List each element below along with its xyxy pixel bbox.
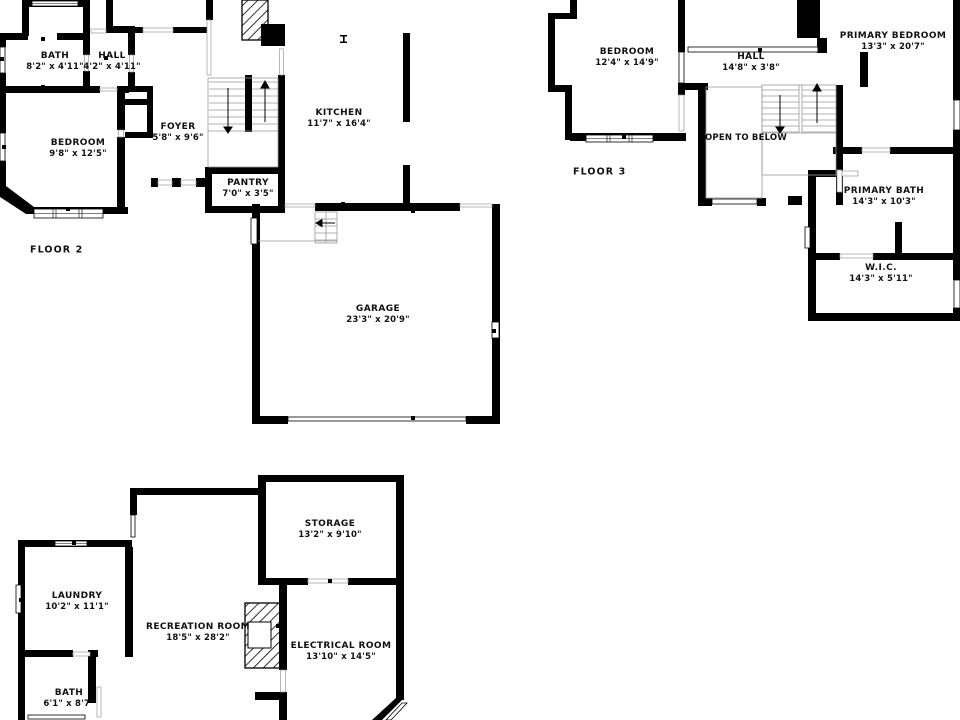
dimension-ticks [0,37,958,655]
room-label-f2-kitchen: KITCHEN 11'7" x 16'4" [307,108,371,130]
room-name: BEDROOM [595,47,659,58]
room-label-f3-primary-bath: PRIMARY BATH 14'3" x 10'3" [844,186,924,208]
room-name: LAUNDRY [45,591,109,602]
floorplan-image: BATH 8'2" x 4'11" HALL 4'2" x 4'11" BEDR… [0,0,960,720]
room-name: BEDROOM [49,138,106,149]
room-name: W.I.C. [849,263,913,274]
floor3-label: FLOOR 3 [573,167,626,178]
room-label-f2-foyer: FOYER 5'8" x 9'6" [152,122,203,144]
room-dims: 13'2" x 9'10" [298,530,362,541]
room-dims: 11'7" x 16'4" [307,119,371,130]
room-label-f3-hall: HALL 14'8" x 3'8" [722,52,779,74]
room-label-f1-electrical-room: ELECTRICAL ROOM 13'10" x 14'5" [291,641,392,663]
room-label-f1-storage: STORAGE 13'2" x 9'10" [298,519,362,541]
room-name: GARAGE [346,304,410,315]
room-label-f2-garage: GARAGE 23'3" x 20'9" [346,304,410,326]
room-dims: 14'3" x 5'11" [849,274,913,285]
room-dims: 12'4" x 14'9" [595,58,659,69]
room-dims: 5'8" x 9'6" [152,133,203,144]
room-dims: 14'3" x 10'3" [844,197,924,208]
floor1-chimney [245,603,280,668]
room-name: ELECTRICAL ROOM [291,641,392,652]
floor2-stairs [208,78,337,243]
room-dims: 23'3" x 20'9" [346,315,410,326]
room-dims: 13'10" x 14'5" [291,652,392,663]
room-label-f2-hall: HALL 4'2" x 4'11" [83,51,140,73]
room-label-f1-laundry: LAUNDRY 10'2" x 11'1" [45,591,109,613]
floor2-label: FLOOR 2 [30,245,83,256]
room-name: FOYER [152,122,203,133]
room-label-f3-wic: W.I.C. 14'3" x 5'11" [849,263,913,285]
room-label-f2-bath: BATH 8'2" x 4'11" [26,51,83,73]
room-label-f3-primary-bedroom: PRIMARY BEDROOM 13'3" x 20'7" [840,31,947,53]
room-name: KITCHEN [307,108,371,119]
room-name: PRIMARY BATH [844,186,924,197]
room-name: HALL [83,51,140,62]
open-to-below-label: OPEN TO BELOW [705,133,787,143]
room-name: BATH [43,688,94,699]
room-label-f2-bedroom: BEDROOM 9'8" x 12'5" [49,138,106,160]
floor3-door-openings [679,95,890,258]
room-name: RECREATION ROOM [146,622,250,633]
room-dims: 8'2" x 4'11" [26,62,83,73]
room-label-f1-recreation-room: RECREATION ROOM 18'5" x 28'2" [146,622,250,644]
room-dims: 10'2" x 11'1" [45,602,109,613]
room-name: STORAGE [298,519,362,530]
room-dims: 18'5" x 28'2" [146,633,250,644]
room-dims: 14'8" x 3'8" [722,63,779,74]
room-label-f1-bath: BATH 6'1" x 8'7" [43,688,94,710]
room-dims: 4'2" x 4'11" [83,62,140,73]
room-dims: 7'0" x 3'5" [222,189,273,200]
room-label-f3-bedroom: BEDROOM 12'4" x 14'9" [595,47,659,69]
room-label-f2-pantry: PANTRY 7'0" x 3'5" [222,178,273,200]
room-dims: 9'8" x 12'5" [49,149,106,160]
room-name: HALL [722,52,779,63]
floorplan-canvas [0,0,960,720]
room-name: PANTRY [222,178,273,189]
floor2-chimney [242,0,268,40]
floor3-stairs [762,85,836,175]
floor2-door-openings [85,20,493,207]
room-name: PRIMARY BEDROOM [840,31,947,42]
room-dims: 6'1" x 8'7" [43,699,94,710]
room-dims: 13'3" x 20'7" [840,42,947,53]
room-name: BATH [26,51,83,62]
